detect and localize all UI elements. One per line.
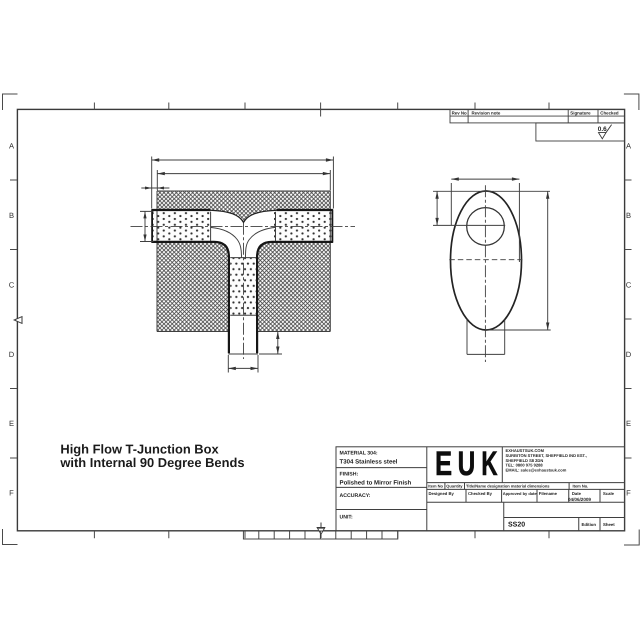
svg-text:0.6: 0.6 xyxy=(598,126,607,133)
svg-text:Filename: Filename xyxy=(539,491,558,496)
svg-text:F: F xyxy=(9,489,14,498)
svg-text:Revision note: Revision note xyxy=(472,111,501,116)
svg-text:Item No.: Item No. xyxy=(573,484,589,489)
svg-text:Rev No: Rev No xyxy=(452,111,467,116)
svg-text:EMAIL: sales@exhaustsuk.com: EMAIL: sales@exhaustsuk.com xyxy=(506,468,567,473)
svg-text:Title/Name designation materia: Title/Name designation material dimensio… xyxy=(466,484,550,489)
svg-text:with Internal 90 Degree Bends: with Internal 90 Degree Bends xyxy=(59,455,244,470)
svg-text:MATERIAL 304:: MATERIAL 304: xyxy=(340,450,378,456)
svg-text:Date: Date xyxy=(572,491,582,496)
svg-text:Signature: Signature xyxy=(570,111,591,116)
svg-text:C: C xyxy=(9,280,15,289)
svg-text:D: D xyxy=(9,350,15,359)
svg-text:Item No: Item No xyxy=(428,484,443,489)
svg-text:SS20: SS20 xyxy=(508,521,525,528)
svg-text:FINISH:: FINISH: xyxy=(340,472,359,478)
svg-text:04/06/2009: 04/06/2009 xyxy=(568,497,591,502)
svg-text:Polished to Mirror Finish: Polished to Mirror Finish xyxy=(340,480,412,487)
svg-text:K: K xyxy=(481,445,497,483)
svg-text:Sheet: Sheet xyxy=(603,522,615,527)
svg-text:E: E xyxy=(626,419,631,428)
svg-text:C: C xyxy=(626,280,632,289)
svg-text:Edition: Edition xyxy=(582,522,597,527)
svg-text:B: B xyxy=(626,211,631,220)
svg-text:Quantity: Quantity xyxy=(446,484,463,489)
svg-text:Approved by date: Approved by date xyxy=(503,491,538,496)
svg-text:F: F xyxy=(626,489,631,498)
svg-text:E: E xyxy=(435,445,452,483)
svg-text:Scale: Scale xyxy=(603,491,615,496)
svg-text:U: U xyxy=(458,445,476,483)
svg-text:D: D xyxy=(626,350,632,359)
svg-text:Designed By: Designed By xyxy=(429,491,455,496)
svg-text:T304 Stainless steel: T304 Stainless steel xyxy=(340,458,398,465)
svg-text:ACCURACY:: ACCURACY: xyxy=(340,493,371,499)
svg-text:E: E xyxy=(9,419,14,428)
svg-text:Checked: Checked xyxy=(600,111,619,116)
svg-text:Checked By: Checked By xyxy=(468,491,493,496)
svg-text:UNIT:: UNIT: xyxy=(340,515,354,521)
svg-text:B: B xyxy=(9,211,14,220)
